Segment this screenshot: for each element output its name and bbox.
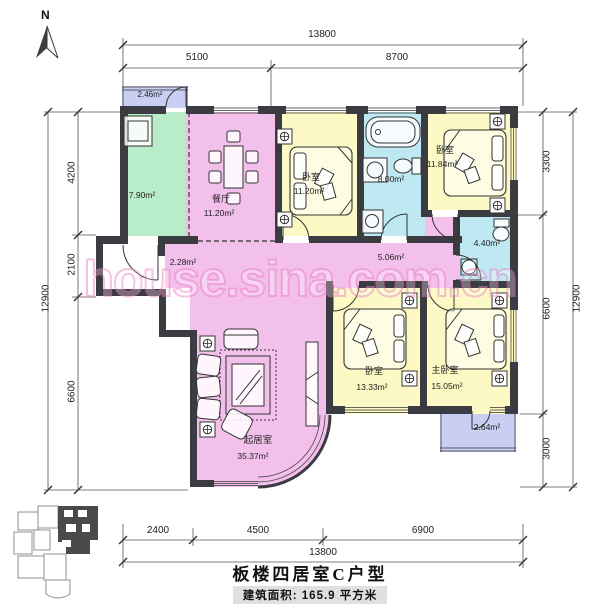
room-label-bathroom-main: 8.00m² [361,175,421,184]
floor-plan-graphic [0,0,600,613]
dim-top-seg2: 8700 [367,52,427,63]
room-name-bedroom-mid: 卧室 [281,173,341,183]
dim-right-seg1: 3300 [542,132,553,192]
dim-top-seg1: 5100 [167,52,227,63]
dim-right-seg3: 3000 [542,419,553,479]
room-label-hallway: 5.06m² [361,253,421,262]
north-arrow-icon [36,26,58,58]
room-name-master: 主卧室 [415,366,475,376]
dim-bottom-seg3: 6900 [393,525,453,536]
room-area-bedroom-ne: 11.84m² [412,160,472,169]
plan-title: 板楼四居室C户型 [0,560,600,585]
dim-bottom-seg1: 2400 [128,525,188,536]
room-name-dining: 餐厅 [191,195,251,205]
dim-left-seg1: 4200 [67,143,78,203]
room-name-bedroom-ne: 卧室 [415,146,475,156]
dim-left-seg3: 6600 [67,362,78,422]
room-label-balcony-bottom: 2.64m² [457,423,517,432]
north-label: N [41,8,50,22]
dim-left-total: 12900 [41,269,52,329]
room-name-bedroom-s: 卧室 [344,367,404,377]
room-area-bedroom-s: 13.33m² [342,383,402,392]
room-area-dining: 11.20m² [189,209,249,218]
room-area-master: 15.05m² [417,382,477,391]
dim-top-total: 13800 [292,29,352,40]
room-area-living: 35.37m² [223,452,283,461]
dim-bottom-total: 13800 [293,547,353,558]
plan-subtitle-wrap: 建筑面积: 165.9 平方米 [0,586,600,604]
room-label-entry: 2.28m² [153,258,213,267]
dim-right-seg2: 6600 [542,279,553,339]
room-label-balcony-top: 2.46m² [120,91,180,100]
room-area-bedroom-mid: 11.20m² [279,187,339,196]
dim-left-seg2: 2100 [67,235,78,295]
room-label-kitchen: 7.90m² [112,191,172,200]
dim-right-total: 12900 [572,269,583,329]
plan-area-text: 建筑面积: 165.9 平方米 [233,586,388,604]
room-label-bathroom-small: 4.40m² [457,239,517,248]
floor-plan-page: N 13800 5100 8700 2400 4500 6900 13800 1… [0,0,600,613]
dim-bottom-seg2: 4500 [228,525,288,536]
room-name-living: 起居室 [228,436,288,446]
